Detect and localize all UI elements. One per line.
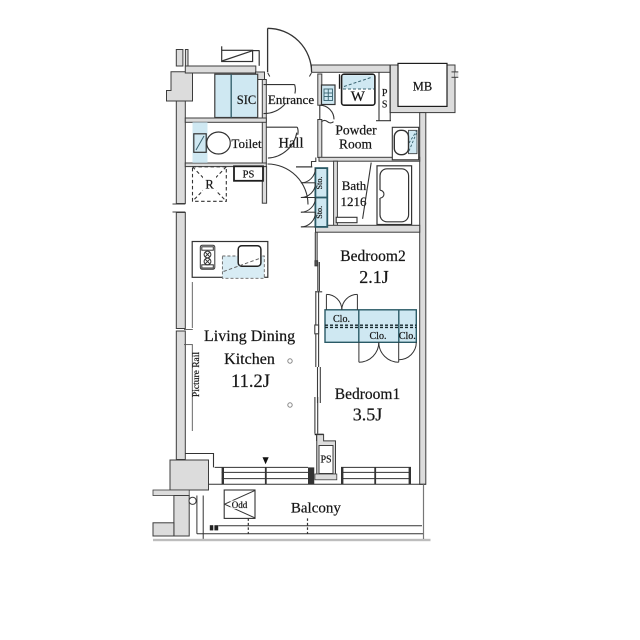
svg-text:Living Dining: Living Dining (204, 328, 295, 345)
svg-text:MB: MB (413, 80, 432, 94)
svg-text:Bedroom2: Bedroom2 (340, 248, 405, 265)
svg-text:Sto.: Sto. (315, 206, 324, 219)
svg-text:Hall: Hall (279, 135, 304, 151)
svg-text:3.5J: 3.5J (353, 405, 383, 425)
svg-text:Clo.: Clo. (333, 314, 350, 325)
svg-text:R: R (205, 178, 214, 192)
svg-text:Clo.: Clo. (370, 331, 387, 342)
svg-text:Toilet: Toilet (231, 136, 262, 151)
svg-text:SIC: SIC (237, 93, 256, 107)
svg-text:Room: Room (339, 137, 373, 152)
svg-text:PS: PS (243, 170, 255, 181)
svg-text:Bedroom1: Bedroom1 (335, 386, 400, 403)
svg-text:Bath: Bath (342, 178, 367, 193)
svg-text:Kitchen: Kitchen (224, 351, 275, 368)
svg-text:2.1J: 2.1J (359, 267, 389, 287)
svg-text:Sto.: Sto. (315, 177, 324, 190)
svg-text:PS: PS (320, 455, 331, 466)
svg-text:Picture Rail: Picture Rail (192, 352, 202, 397)
svg-text:Odd: Odd (232, 500, 248, 510)
svg-text:P: P (382, 88, 388, 99)
svg-text:1216: 1216 (341, 194, 368, 209)
svg-text:S: S (382, 100, 388, 111)
svg-text:Balcony: Balcony (291, 501, 341, 517)
svg-text:11.2J: 11.2J (231, 372, 270, 392)
svg-text:Clo.: Clo. (399, 331, 416, 342)
svg-text:Entrance: Entrance (268, 92, 314, 107)
svg-text:W: W (351, 89, 366, 105)
svg-text:Powder: Powder (335, 123, 377, 138)
